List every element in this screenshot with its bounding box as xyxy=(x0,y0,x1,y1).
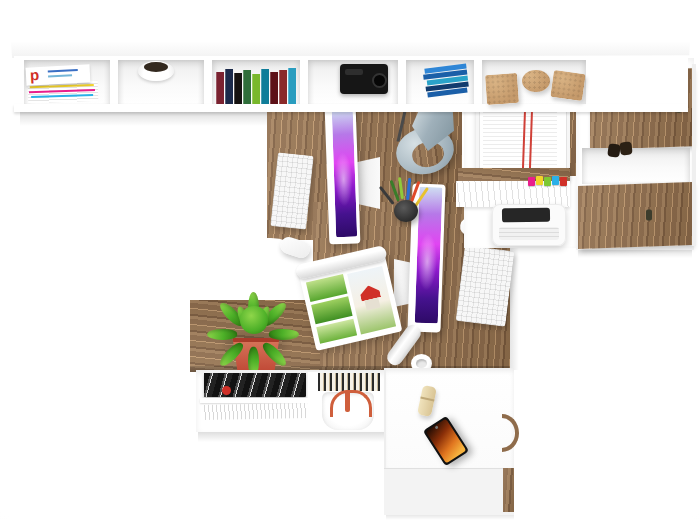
keyboard-2 xyxy=(456,245,515,327)
monitor-1-screen xyxy=(332,109,357,238)
door-handle xyxy=(502,414,519,452)
folded-glasses xyxy=(606,142,636,159)
striped-magazines xyxy=(318,373,380,391)
basket-handle-arc xyxy=(330,390,372,417)
bowl xyxy=(138,61,174,81)
magazine-shelf-shadow xyxy=(198,432,386,442)
cabinet-door-bottom xyxy=(578,182,692,249)
keyboard-1 xyxy=(270,152,314,229)
monitor-2-screen xyxy=(415,187,443,324)
glasses-lens-right xyxy=(619,141,632,155)
pen-cup-body xyxy=(394,200,418,222)
cork-disk xyxy=(522,70,550,92)
magazine-shelf-divider xyxy=(308,372,318,430)
office-top-view: p xyxy=(0,0,700,520)
magazine-pile xyxy=(204,373,306,397)
tray-papers xyxy=(483,110,557,168)
printer-tray xyxy=(499,227,559,240)
cabinet-side xyxy=(692,64,696,246)
cabinet-open-shelf xyxy=(582,148,690,184)
cabinet-shadow xyxy=(578,249,692,258)
cactus-leaves xyxy=(221,292,287,358)
fanned-papers xyxy=(202,403,308,420)
house-body xyxy=(365,298,381,311)
mug-opening xyxy=(416,359,427,368)
monitor-1 xyxy=(325,106,361,245)
basket xyxy=(322,392,374,430)
bowl-interior xyxy=(144,62,168,72)
cactus-center xyxy=(240,306,268,334)
magazine-shelf-mid xyxy=(200,398,310,403)
wall-shelf-top xyxy=(8,2,692,58)
basket-handle-strap xyxy=(345,390,350,412)
bottom-desk-wood-trim xyxy=(503,468,514,512)
tray-red-line-2 xyxy=(529,110,533,168)
cd-stack xyxy=(422,63,471,98)
black-camera xyxy=(340,64,388,94)
printer-slot xyxy=(502,208,550,223)
book-row xyxy=(216,64,296,104)
magazine-cover: p xyxy=(26,64,91,85)
magazine-logo: p xyxy=(30,66,40,83)
cabinet-knob-bottom xyxy=(646,209,652,220)
wall-shelf-lip xyxy=(14,104,688,112)
cork-cube-1 xyxy=(485,73,519,105)
tray-red-line-1 xyxy=(522,110,526,168)
camera-lens xyxy=(372,73,387,88)
cork-cube-2 xyxy=(550,70,585,101)
magazine-red-dot xyxy=(222,386,231,395)
bottom-desk-front xyxy=(384,468,514,515)
printer xyxy=(492,204,566,246)
